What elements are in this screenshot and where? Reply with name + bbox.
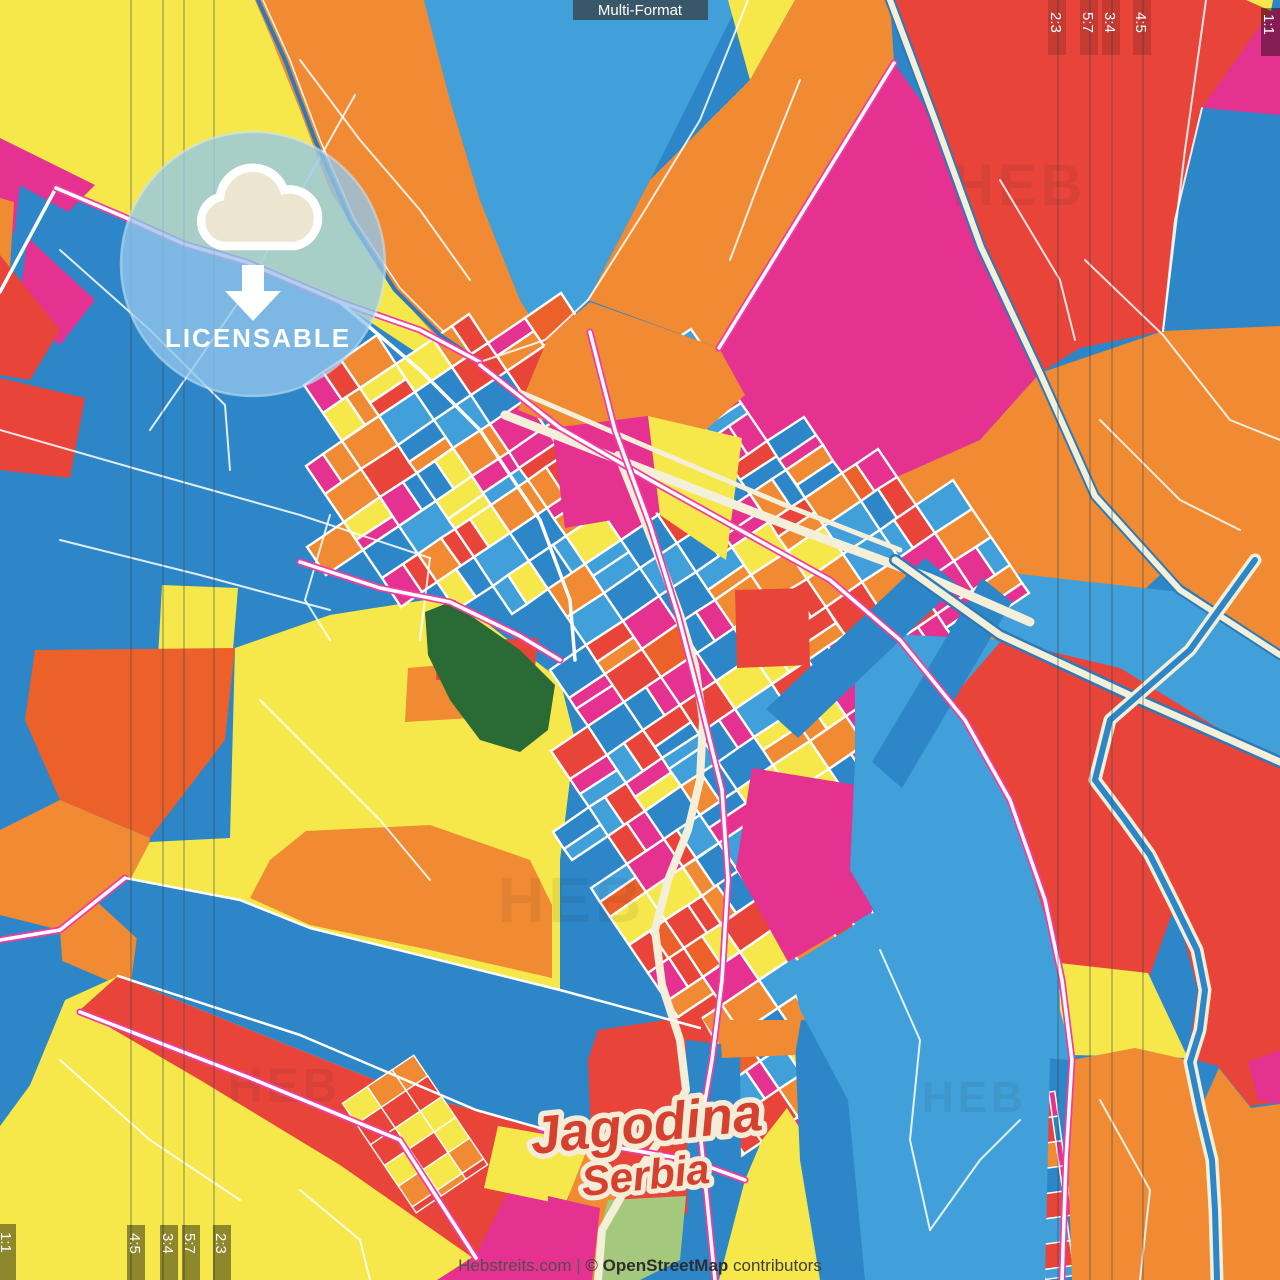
svg-text:1:1: 1:1	[1260, 14, 1277, 35]
svg-text:3:4: 3:4	[159, 1233, 176, 1254]
svg-text:5:7: 5:7	[181, 1233, 198, 1254]
svg-text:1:1: 1:1	[0, 1232, 14, 1253]
svg-text:2:3: 2:3	[212, 1233, 229, 1254]
svg-text:5:7: 5:7	[1079, 12, 1096, 33]
svg-text:3:4: 3:4	[1101, 12, 1118, 33]
svg-text:Hebstreits.com | © OpenStreetM: Hebstreits.com | © OpenStreetMap contrib…	[458, 1256, 822, 1275]
svg-text:Multi-Format: Multi-Format	[598, 2, 683, 19]
svg-text:4:5: 4:5	[126, 1233, 143, 1254]
svg-text:2:3: 2:3	[1047, 12, 1064, 33]
svg-text:HEB: HEB	[922, 1073, 1027, 1122]
svg-text:HEB: HEB	[498, 864, 645, 936]
svg-text:4:5: 4:5	[1132, 12, 1149, 33]
svg-text:LICENSABLE: LICENSABLE	[165, 323, 351, 353]
